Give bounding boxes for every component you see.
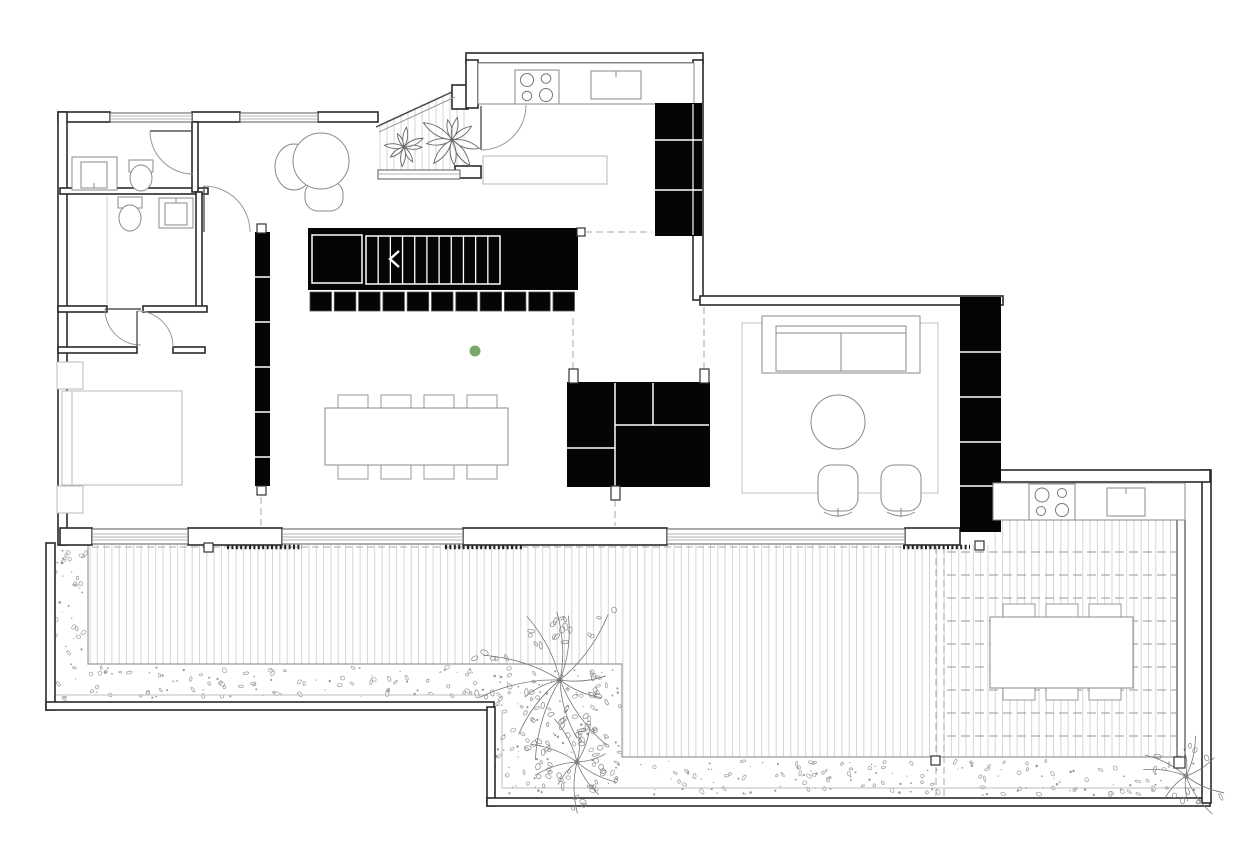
outdoor-kitchen (993, 483, 1185, 520)
bathroom-1 (72, 157, 153, 191)
swivel-chair (881, 465, 921, 517)
door (150, 131, 193, 174)
chair (338, 395, 368, 409)
outdoor-dining (204, 543, 1185, 768)
sliding-door (282, 529, 463, 544)
chair (381, 465, 411, 479)
outdoor-counter-side-wall (1177, 483, 1185, 757)
glazed-corner-line (379, 97, 455, 132)
door (204, 186, 250, 232)
kitchen-island (483, 156, 607, 184)
floor-plan-drawing (0, 0, 1250, 855)
door (105, 309, 141, 345)
site-boundary-right (1202, 470, 1211, 803)
outdoor-cooktop (1029, 484, 1075, 520)
column-post (1174, 757, 1185, 768)
window (378, 170, 460, 179)
column-post (577, 228, 585, 236)
outdoor-counter (993, 483, 1185, 520)
stair-storage-cubbies (310, 292, 575, 311)
chair (424, 465, 454, 479)
chair (1046, 604, 1078, 618)
site-boundary-left (46, 543, 55, 710)
chair (424, 395, 454, 409)
door (481, 105, 526, 150)
staircase (308, 228, 652, 311)
dining-area (325, 346, 508, 480)
nightstand (57, 362, 83, 389)
cooktop (515, 70, 559, 104)
column-post (204, 543, 213, 552)
door (137, 311, 173, 347)
chair (1089, 604, 1121, 618)
kitchen (478, 63, 702, 236)
bedroom-furniture (57, 362, 182, 513)
column-post (257, 224, 266, 233)
kitchen-counter (478, 63, 694, 104)
floor-plan-canvas (0, 0, 1250, 855)
column-post (700, 369, 709, 383)
plant-icon (423, 117, 479, 165)
swivel-chair (818, 465, 858, 517)
lounge-chair (275, 133, 349, 211)
sofa (762, 316, 920, 373)
sliding-door (92, 529, 188, 544)
wardrobe-wall (255, 224, 270, 527)
site-boundary-step (487, 707, 495, 806)
patio-plants (384, 117, 479, 166)
outdoor-dining-table (990, 617, 1133, 688)
chair (338, 465, 368, 479)
green-column-marker (470, 346, 481, 357)
coffee-table (811, 395, 865, 449)
column-post (611, 486, 620, 500)
site-boundary-bottom-left (46, 702, 494, 710)
column-post (931, 756, 940, 765)
column-post (975, 541, 984, 550)
nightstand (57, 486, 83, 513)
dining-table (325, 408, 508, 465)
chair (467, 395, 497, 409)
toilet-bowl (119, 205, 141, 231)
toilet-bowl (130, 165, 152, 191)
island-block (567, 307, 710, 526)
chair (381, 395, 411, 409)
glazed-corner-line (376, 92, 452, 127)
window (240, 113, 318, 122)
site-boundary-bottom-right (487, 798, 1210, 806)
plant-icon (384, 127, 423, 166)
bathroom-2 (118, 197, 193, 231)
chair (1003, 604, 1035, 618)
window (110, 113, 192, 122)
chair (467, 465, 497, 479)
living-room (742, 297, 1001, 550)
sliding-door (667, 529, 905, 544)
column-post (257, 486, 266, 495)
double-bed (62, 391, 182, 485)
column-post (569, 369, 578, 383)
tall-cabinets (655, 103, 702, 236)
